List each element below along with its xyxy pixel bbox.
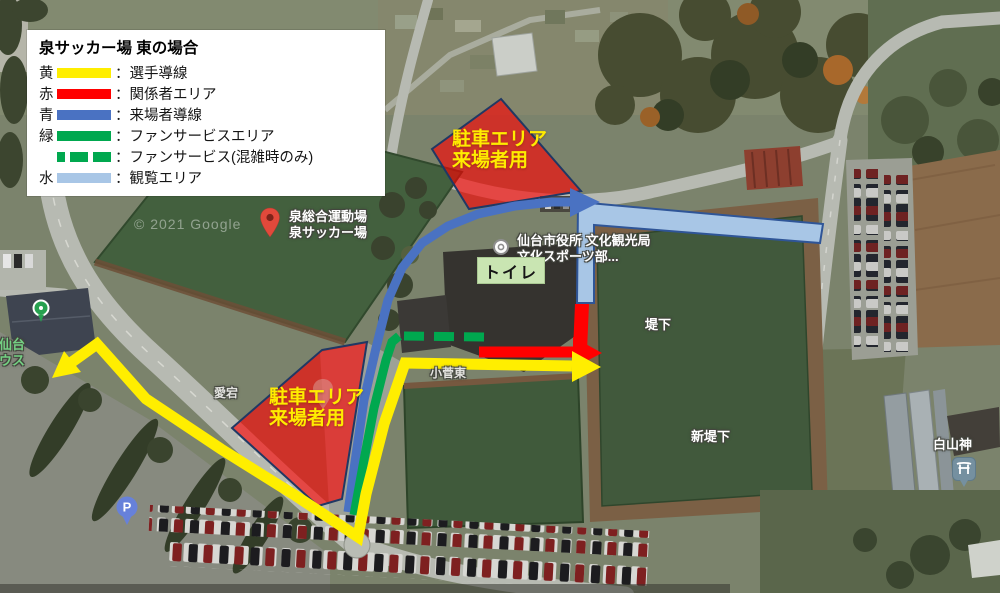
legend-key: 赤	[39, 83, 57, 104]
clubhouse-label: ア仙台ハウス	[0, 337, 25, 369]
legend-row-fan-service: 緑 ：ファンサービスエリア	[39, 125, 375, 146]
legend-label: ：観覧エリア	[115, 167, 202, 188]
legend: 泉サッカー場 東の場合 黄 ：選手導線 赤 ：関係者エリア 青 ：来場者導線 緑…	[27, 30, 385, 196]
legend-label: ：選手導線	[115, 62, 188, 83]
legend-label: ：来場者導線	[115, 104, 202, 125]
parking-pin-letter: P	[123, 500, 132, 515]
legend-swatch-yellow	[57, 68, 111, 78]
legend-label: ：ファンサービスエリア	[115, 125, 275, 146]
google-watermark: © 2021 Google	[134, 216, 241, 232]
parking-area-bottom-label: 駐車エリア来場者用	[269, 387, 364, 429]
legend-key: 黄	[39, 62, 57, 83]
legend-swatch-green	[57, 131, 111, 141]
legend-row-fan-service-busy: ：ファンサービス(混雑時のみ)	[39, 146, 375, 167]
venue-map-pin	[259, 207, 281, 239]
shrine-pin	[949, 455, 979, 489]
legend-swatch-red	[57, 89, 111, 99]
legend-swatch-blue	[57, 110, 111, 120]
parking-pin: P	[114, 494, 140, 530]
legend-title: 泉サッカー場 東の場合	[39, 36, 375, 58]
legend-row-staff-area: 赤 ：関係者エリア	[39, 83, 375, 104]
shrine-label: 白山神	[933, 437, 972, 453]
legend-key: 水	[39, 167, 57, 188]
toilet-label: トイレ	[477, 257, 545, 284]
legend-swatch-green-dashed	[57, 152, 111, 162]
city-office-icon	[492, 238, 510, 256]
field-se-label: 新堤下	[691, 429, 730, 445]
parking-area-top-label: 駐車エリア来場者用	[452, 129, 547, 171]
district-center-label: 小菅東	[430, 366, 466, 380]
legend-row-viewing-area: 水 ：観覧エリア	[39, 167, 375, 188]
legend-key: 緑	[39, 125, 57, 146]
clubhouse-pin	[30, 298, 52, 328]
legend-label: ：関係者エリア	[115, 83, 217, 104]
legend-key: 青	[39, 104, 57, 125]
legend-row-player-route: 黄 ：選手導線	[39, 62, 375, 83]
venue-label: 泉総合運動場泉サッカー場	[289, 209, 367, 241]
legend-row-visitor-route: 青 ：来場者導線	[39, 104, 375, 125]
fan-service-dashed-line	[404, 336, 484, 337]
district-west-label: 愛宕	[214, 386, 238, 400]
legend-swatch-lightblue	[57, 173, 111, 183]
legend-label: ：ファンサービス(混雑時のみ)	[115, 146, 313, 167]
map-canvas: 泉総合運動場泉サッカー場 仙台市役所 文化観光局文化スポーツ部... 堤下 新堤…	[0, 0, 1000, 593]
field-ne-label: 堤下	[645, 317, 671, 333]
